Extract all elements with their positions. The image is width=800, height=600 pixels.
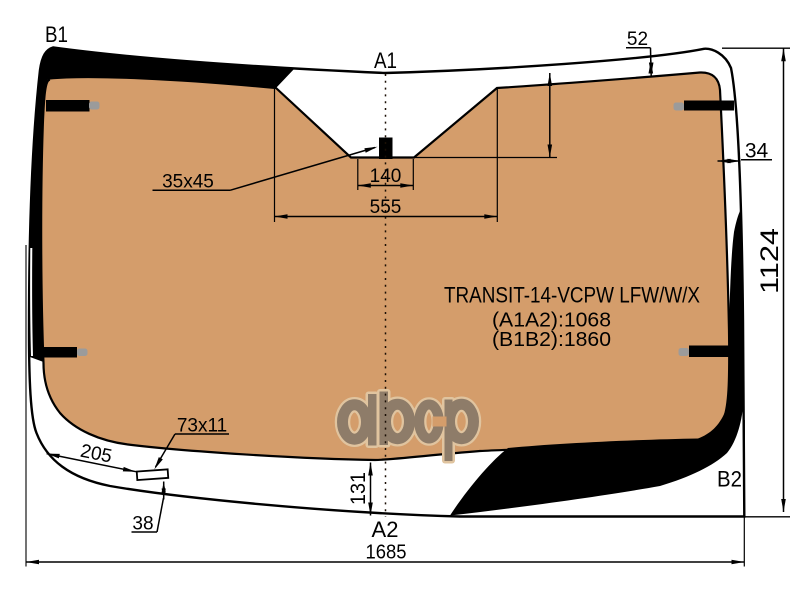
svg-text:(B1B2):1860: (B1B2):1860 xyxy=(492,328,611,351)
svg-text:140: 140 xyxy=(370,166,402,187)
svg-text:1124: 1124 xyxy=(756,228,784,294)
svg-text:131: 131 xyxy=(346,472,370,505)
svg-text:B1: B1 xyxy=(45,22,68,47)
svg-text:A1: A1 xyxy=(374,48,397,73)
svg-text:555: 555 xyxy=(370,197,402,218)
svg-text:B2: B2 xyxy=(717,467,742,492)
svg-text:A2: A2 xyxy=(372,517,399,542)
svg-text:1685: 1685 xyxy=(366,542,407,564)
svg-text:TRANSIT-14-VCPW LFW/W/X: TRANSIT-14-VCPW LFW/W/X xyxy=(444,283,700,308)
svg-text:35x45: 35x45 xyxy=(162,172,214,193)
svg-text:52: 52 xyxy=(627,29,648,50)
